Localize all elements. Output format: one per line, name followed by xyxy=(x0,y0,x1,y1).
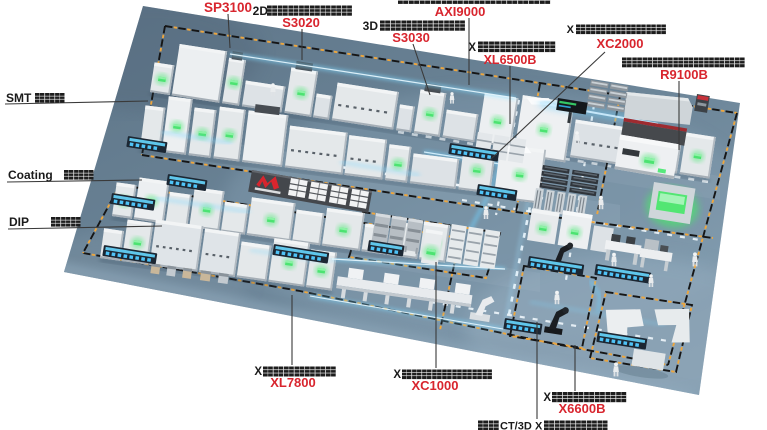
svg-text:R9100B: R9100B xyxy=(660,67,708,82)
svg-text:2D: 2D xyxy=(253,4,269,18)
svg-text:X: X xyxy=(543,392,551,404)
svg-text:DIP: DIP xyxy=(9,215,29,229)
svg-text:XC1000: XC1000 xyxy=(412,378,459,393)
svg-text:Coating: Coating xyxy=(8,168,53,182)
svg-text:XL7800: XL7800 xyxy=(270,375,316,390)
svg-text:S3020: S3020 xyxy=(282,15,320,30)
svg-text:X6600B: X6600B xyxy=(559,401,606,416)
svg-text:S3030: S3030 xyxy=(392,30,430,45)
svg-text:X: X xyxy=(468,42,476,54)
svg-text:SP3100: SP3100 xyxy=(204,0,252,15)
svg-text:XL6500B: XL6500B xyxy=(484,53,537,67)
svg-text:X: X xyxy=(254,366,262,378)
svg-text:CT/3D: CT/3D xyxy=(500,421,532,430)
svg-text:AXI9000: AXI9000 xyxy=(435,4,486,19)
svg-text:X: X xyxy=(567,24,575,36)
svg-text:X: X xyxy=(535,421,543,430)
svg-text:XC2000: XC2000 xyxy=(597,36,644,51)
svg-text:X: X xyxy=(393,369,401,381)
svg-text:3D: 3D xyxy=(363,19,379,33)
svg-text:SMT: SMT xyxy=(6,91,32,105)
